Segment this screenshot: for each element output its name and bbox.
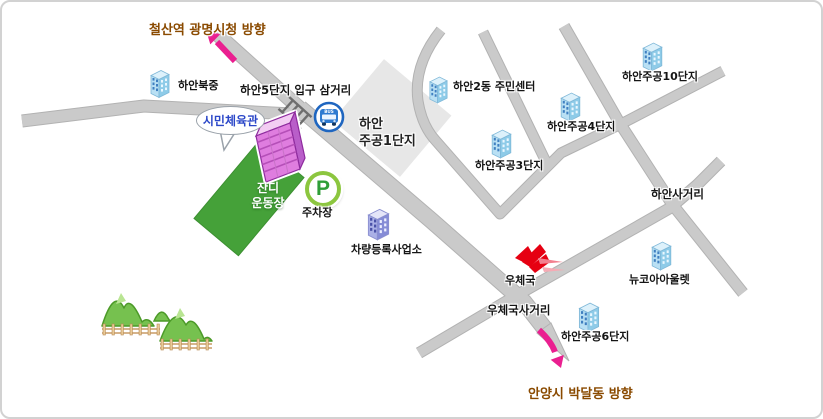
school-building-icon bbox=[148, 68, 172, 99]
complex4-label: 하안주공4단지 bbox=[547, 120, 615, 133]
gym-bubble-label: 시민체육관 bbox=[203, 112, 258, 129]
complex4-building-icon bbox=[558, 91, 583, 122]
complex1-line2: 주공1단지 bbox=[359, 133, 416, 150]
newcore-label: 뉴코아아울렛 bbox=[629, 273, 690, 286]
newcore-building-icon bbox=[649, 240, 674, 271]
complex10-label: 하안주공10단지 bbox=[622, 70, 698, 83]
grass-line2: 운동장 bbox=[230, 196, 306, 211]
parking-icon: P bbox=[305, 171, 341, 207]
complex6-label: 하안주공6단지 bbox=[561, 330, 629, 343]
post-intersection-label: 우체국사거리 bbox=[487, 304, 550, 318]
complex1-line1: 하안 bbox=[359, 116, 416, 133]
bus-stop-icon: BUS bbox=[313, 101, 345, 133]
post-office-label: 우체국 bbox=[505, 274, 535, 287]
community-center-label: 하안2동 주민센터 bbox=[453, 80, 535, 93]
gym-bubble: 시민체육관 bbox=[196, 106, 265, 135]
vehicle-office-label: 차량등록사업소 bbox=[351, 243, 422, 256]
trees-icon bbox=[102, 293, 212, 350]
bus-badge: BUS bbox=[324, 109, 334, 114]
direction-top-label: 철산역 광명시청 방향 bbox=[149, 23, 266, 39]
complex3-building-icon bbox=[489, 128, 514, 159]
complex10-building-icon bbox=[640, 41, 665, 72]
direction-bottom-label: 안양시 박달동 방향 bbox=[528, 387, 633, 403]
haan-intersection-label: 하안사거리 bbox=[651, 188, 704, 202]
complex6-building-icon bbox=[576, 301, 602, 333]
grass-field-label: 잔디 운동장 bbox=[230, 181, 306, 211]
school-label: 하안북중 bbox=[178, 79, 218, 92]
vehicle-office-building-icon bbox=[365, 207, 392, 241]
complex3-label: 하안주공3단지 bbox=[475, 159, 543, 172]
area-map: BUS P 시민체육관 철산역 광명시청 방향 하안북중 하안5단지 입구 삼거… bbox=[0, 0, 823, 419]
entrance-intersection-label: 하안5단지 입구 삼거리 bbox=[240, 84, 351, 98]
grass-line1: 잔디 bbox=[230, 181, 306, 196]
parking-label: 주차장 bbox=[302, 206, 332, 219]
complex1-label: 하안 주공1단지 bbox=[359, 116, 416, 150]
road-network bbox=[2, 2, 823, 419]
community-center-building-icon bbox=[427, 75, 450, 104]
